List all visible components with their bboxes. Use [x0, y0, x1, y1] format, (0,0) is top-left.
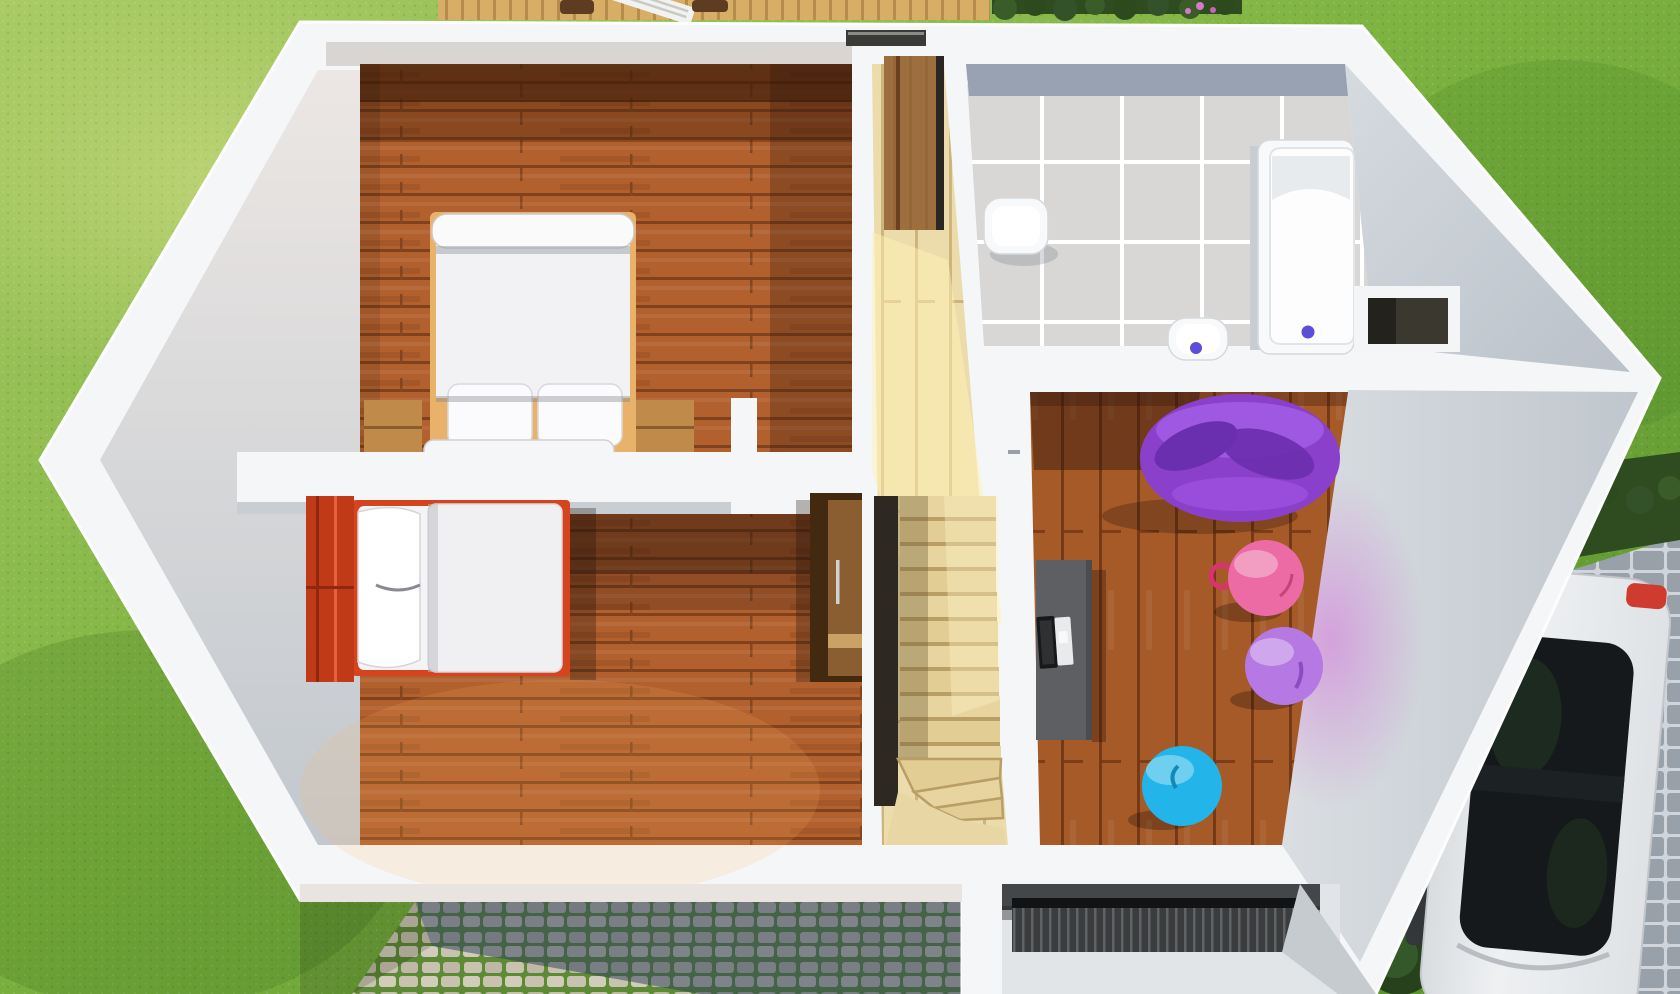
- bed1-duvet: [436, 240, 630, 398]
- divider-wall-return: [731, 398, 757, 502]
- double-bed: [424, 212, 636, 466]
- entrance-porch: [962, 884, 1376, 994]
- deck-chair-left-icon: [560, 0, 594, 14]
- room-bathroom: [966, 64, 1374, 360]
- bed2-duvet: [428, 504, 562, 672]
- sideboard: [796, 493, 862, 682]
- stair-sunlight: [944, 496, 1000, 716]
- single-bed: [306, 496, 596, 682]
- winder-steps: [886, 759, 1006, 845]
- hall-door: [884, 56, 944, 230]
- bed1-duvet-roll: [432, 214, 634, 248]
- laptop-icon: [1036, 615, 1074, 669]
- stair-shadow: [898, 496, 928, 758]
- bedroom2-sunlight: [300, 680, 820, 900]
- top-wall-inner-face: [326, 42, 852, 66]
- wash-basin: [984, 198, 1058, 266]
- bathtub: [1250, 140, 1354, 354]
- door-gap: [936, 56, 944, 230]
- sideboard-handle-icon: [836, 560, 840, 604]
- floorplan-render: [0, 0, 1680, 994]
- porch-left-wall: [962, 884, 1002, 994]
- room-bedroom-2: [300, 493, 862, 900]
- desk: [1036, 560, 1106, 742]
- pink-flowers-icon: [1196, 2, 1204, 10]
- bed1-pillow-left: [448, 384, 532, 446]
- car-taillight-right-icon: [1625, 582, 1667, 609]
- bathtub-drain-icon: [1302, 326, 1315, 339]
- deck-chair-right-icon: [692, 0, 728, 12]
- bathroom-dark-tile-row: [966, 64, 1348, 96]
- floorplan-svg: [0, 0, 1680, 994]
- house: [40, 22, 1660, 994]
- room-bedroom-1: [360, 64, 852, 466]
- bed1-pillow-right: [538, 384, 622, 446]
- stair-void: [874, 496, 898, 806]
- bed2-shadow: [570, 508, 596, 680]
- staircase: [874, 496, 1006, 845]
- bottom-wall-outer-face: [300, 884, 962, 902]
- toilet: [1168, 318, 1228, 360]
- door-handle-icon: [1008, 450, 1020, 454]
- cobblestone-walkway: [300, 902, 963, 994]
- wall-niche: [1354, 286, 1460, 352]
